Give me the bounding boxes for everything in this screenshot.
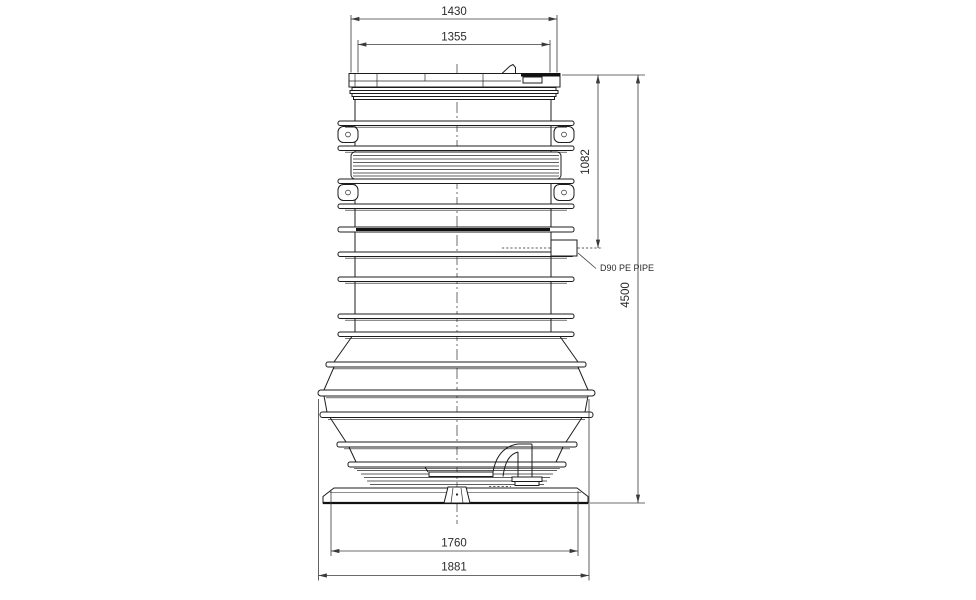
technical-drawing-canvas: 1430 1355 1082 4500 1760 (0, 0, 976, 600)
rib (338, 277, 574, 282)
dimension-value: 4500 (620, 282, 632, 308)
corrugated-seal-section (351, 152, 561, 179)
rib (326, 362, 586, 367)
rib (348, 462, 566, 467)
rib (338, 179, 574, 184)
cover-handle (502, 65, 516, 74)
drawing-sheet: 1430 1355 1082 4500 1760 (0, 0, 976, 600)
dimension-value: 1881 (441, 562, 467, 574)
lifting-lug-band-lower (338, 185, 574, 201)
telescopic-rings (350, 88, 558, 100)
access-cover (349, 65, 560, 100)
rib (338, 314, 574, 319)
dimension-value: 1082 (580, 149, 592, 175)
dimension-value: 1355 (441, 32, 467, 44)
lifting-lug-band-upper (338, 127, 574, 143)
dimension-value: 1760 (441, 538, 467, 550)
rib (338, 204, 574, 209)
rib-widest (318, 390, 595, 396)
rib (338, 252, 574, 257)
leader-line (578, 253, 596, 269)
dimension-overall-height: 4500 (620, 75, 638, 503)
rib (338, 121, 574, 126)
elbow-flange (512, 477, 542, 482)
cone-section (318, 337, 595, 485)
inlet-pipe-label: D90 PE PIPE (600, 263, 654, 273)
label-inlet-pipe: D90 PE PIPE (578, 253, 654, 273)
shaft-wall (355, 99, 551, 337)
rib (338, 146, 574, 151)
dimension-value: 1430 (441, 6, 467, 18)
pump-pedestal (444, 487, 470, 503)
dimension-inlet-depth: 1082 (580, 75, 598, 248)
dimension-lid-inner-width: 1355 (358, 32, 550, 73)
rib (338, 332, 574, 337)
elbow-flange (515, 482, 539, 486)
rib (337, 442, 577, 447)
tank-body (318, 65, 603, 504)
rib-widest (320, 412, 593, 418)
